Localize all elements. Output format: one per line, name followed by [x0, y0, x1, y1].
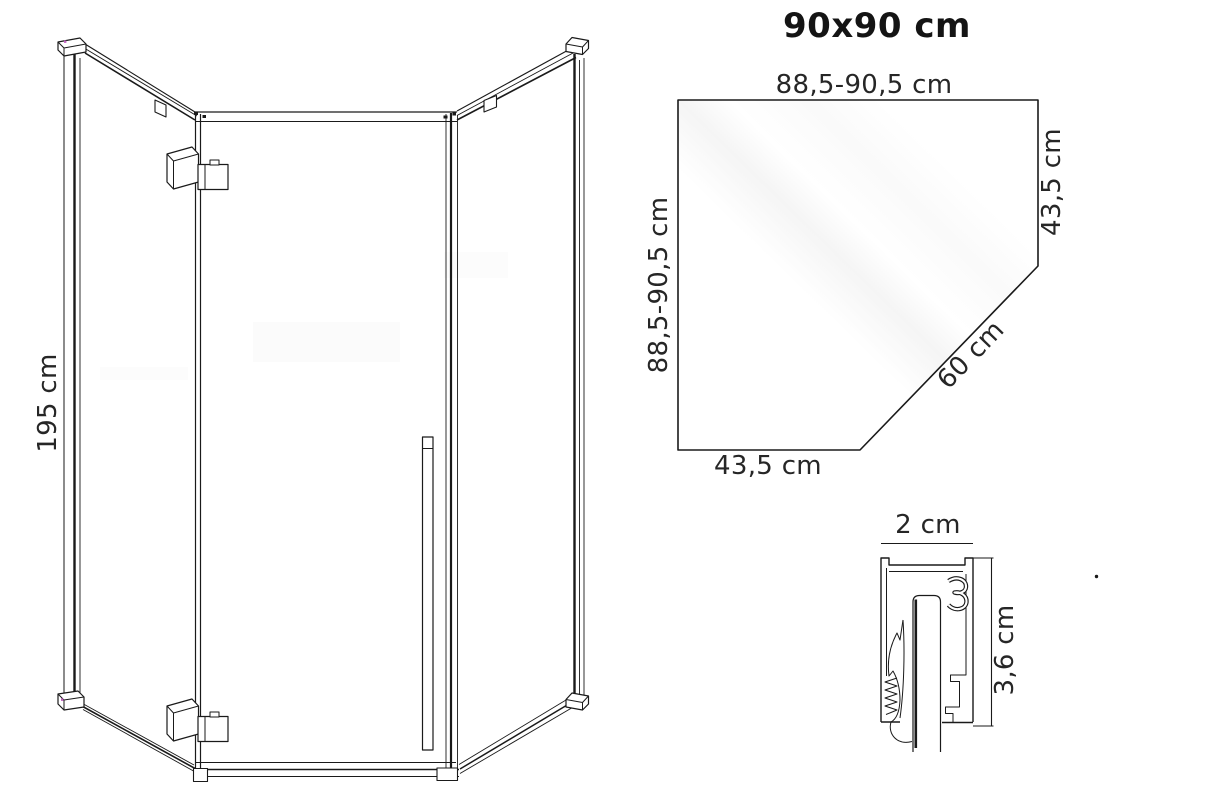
- bottom-side-label: 43,5 cm: [714, 453, 822, 479]
- front-height-label: 195 cm: [35, 353, 61, 452]
- speck: [61, 699, 63, 701]
- seal-gasket: [885, 620, 912, 742]
- profile-outline: [881, 558, 973, 723]
- pentagon-outline: [678, 100, 1038, 450]
- profile-height-label: 3,6 cm: [992, 604, 1018, 695]
- top-width-label: 88,5-90,5 cm: [776, 72, 953, 98]
- wall-bracket-left: [155, 100, 166, 117]
- profile-width-label: 2 cm: [895, 512, 961, 538]
- diagram-canvas: 90x90 cm 88,5-90,5 cm 88,5-90,5 cm 43,5 …: [0, 0, 1208, 795]
- speck: [1095, 575, 1098, 578]
- left-width-label: 88,5-90,5 cm: [646, 197, 672, 374]
- glass-pane: [913, 596, 941, 753]
- right-glass-panel: [457, 38, 589, 774]
- front-view-drawing: [58, 38, 589, 782]
- speck: [64, 41, 66, 43]
- left-glass-panel: [58, 38, 198, 774]
- right-side-label: 43,5 cm: [1039, 128, 1065, 236]
- spring-coil: [885, 678, 897, 715]
- bottom-hinge: [167, 699, 228, 742]
- watermark-remnant: [100, 252, 508, 380]
- top-hinge: [167, 147, 228, 190]
- door-panel: [194, 112, 460, 782]
- retaining-clip: [949, 578, 967, 609]
- wall-bracket-right: [484, 96, 497, 113]
- size-title: 90x90 cm: [783, 9, 971, 43]
- door-handle: [423, 437, 434, 750]
- line-art: [0, 0, 1208, 795]
- top-view-diagram: [678, 100, 1038, 450]
